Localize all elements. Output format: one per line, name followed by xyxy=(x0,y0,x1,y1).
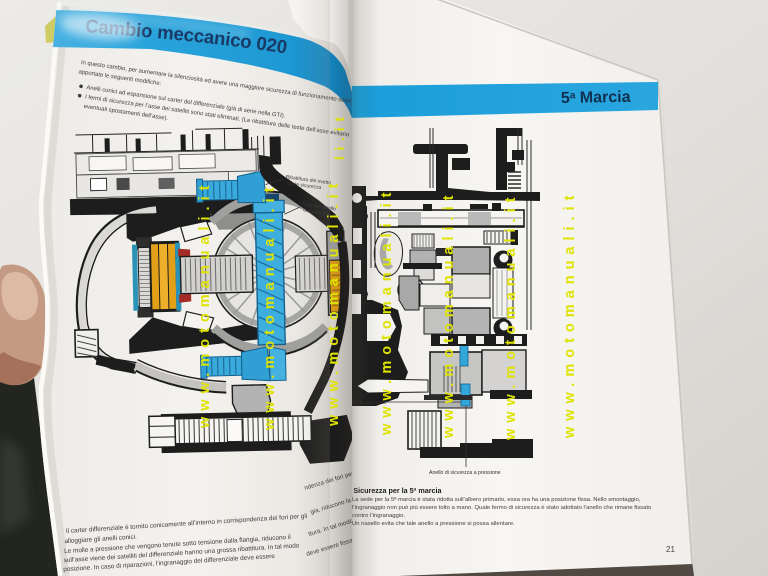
svg-text:www.motomanuali.it: www.motomanuali.it xyxy=(562,190,578,439)
svg-text:21: 21 xyxy=(666,545,675,554)
svg-text:www.motomanuali.it: www.motomanuali.it xyxy=(379,187,395,436)
svg-text:l’ingranaggio non può più esse: l’ingranaggio non può più essere tolto a… xyxy=(352,505,652,511)
svg-text:www.motomanuali.it: www.motomanuali.it xyxy=(197,180,213,429)
svg-text:www.motomanuali.it: www.motomanuali.it xyxy=(326,178,342,427)
svg-text:La sede per la 5ª marcia è sta: La sede per la 5ª marcia è stata ridotta… xyxy=(352,496,641,503)
svg-text:www.motomanuali.it: www.motomanuali.it xyxy=(262,182,278,431)
svg-text:Anello di sicurezza a pression: Anello di sicurezza a pressione xyxy=(429,470,501,476)
svg-text:li.it: li.it xyxy=(332,111,347,160)
svg-text:www.motomanuali.it: www.motomanuali.it xyxy=(503,192,519,441)
svg-text:www.motomanuali.it: www.motomanuali.it xyxy=(441,190,457,439)
